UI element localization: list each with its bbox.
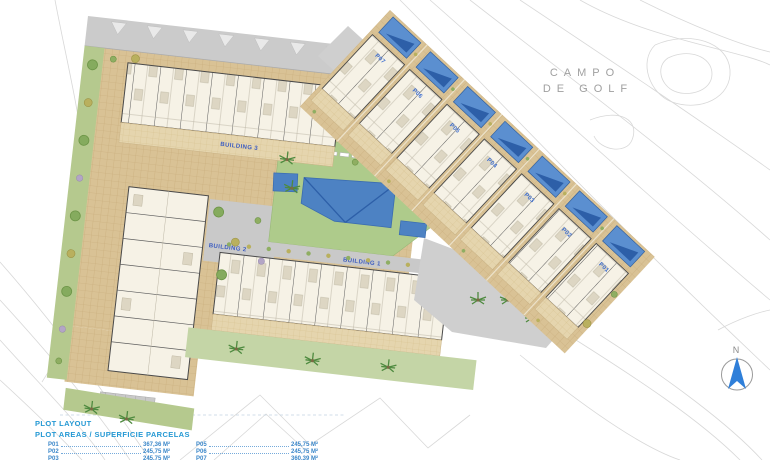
dotted-leader xyxy=(61,446,141,447)
plot-area-value: 245,75 M² xyxy=(143,456,170,460)
legend-title: PLOT LAYOUT xyxy=(35,419,355,428)
plot-areas-table: P01 367,36 M² P02 245,75 M² P03 245,75 M… xyxy=(48,442,355,460)
plot-id: P07 xyxy=(196,456,207,460)
plot-area-row: P01 367,36 M² xyxy=(48,442,170,449)
plot-area-row: P05 245,75 M² xyxy=(196,442,318,449)
north-compass: N xyxy=(722,345,753,390)
golf-label-line1: CAMPO xyxy=(550,67,620,79)
plot-area-value: 245,75 M² xyxy=(291,449,318,456)
plot-areas-column-1: P01 367,36 M² P02 245,75 M² P03 245,75 M… xyxy=(48,442,170,460)
plot-area-row: P06 245,75 M² xyxy=(196,449,318,456)
dotted-leader xyxy=(209,453,289,454)
plot-area-value: 367,36 M² xyxy=(143,442,170,449)
compass-north-label: N xyxy=(733,345,740,355)
plot-id: P02 xyxy=(48,449,59,456)
dotted-leader xyxy=(209,446,289,447)
dotted-leader xyxy=(61,453,141,454)
plot-id: P05 xyxy=(196,442,207,449)
plot-area-row: P02 245,75 M² xyxy=(48,449,170,456)
plot-id: P06 xyxy=(196,449,207,456)
plot-areas-column-2: P05 245,75 M² P06 245,75 M² P07 360,39 M… xyxy=(196,442,318,460)
plot-area-row: P03 245,75 M² xyxy=(48,456,170,460)
plot-id: P03 xyxy=(48,456,59,460)
site-plan-canvas: BUILDING 3 BUILDING 2 BUILDING 1 xyxy=(0,0,770,460)
golf-course-label: CAMPO DE GOLF xyxy=(543,67,633,95)
plot-area-row: P07 360,39 M² xyxy=(196,456,318,460)
plot-area-value: 360,39 M² xyxy=(291,456,318,460)
legend-subtitle: PLOT AREAS / SUPERFICIE PARCELAS xyxy=(35,430,355,439)
small-pool-east xyxy=(399,221,426,238)
golf-label-line2: DE GOLF xyxy=(543,83,633,95)
legend: PLOT LAYOUT PLOT AREAS / SUPERFICIE PARC… xyxy=(35,419,355,460)
plot-area-value: 245,75 M² xyxy=(291,442,318,449)
plot-id: P01 xyxy=(48,442,59,449)
plot-area-value: 245,75 M² xyxy=(143,449,170,456)
site-plan: BUILDING 3 BUILDING 2 BUILDING 1 xyxy=(0,0,770,460)
